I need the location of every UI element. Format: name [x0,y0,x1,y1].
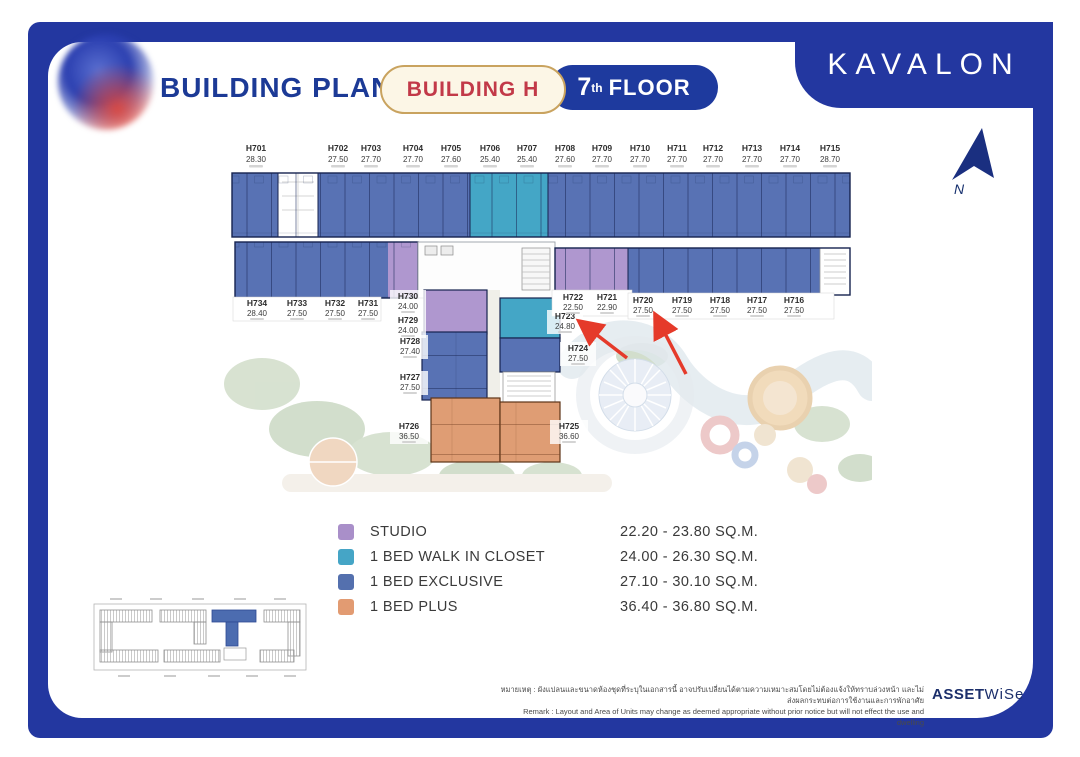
unit-area: 27.50 [328,155,349,164]
unit-band-mid-right [555,248,850,295]
page-title: BUILDING PLAN [160,72,392,104]
legend-range: 36.40 - 36.80 SQ.M. [620,599,758,615]
unit-area: 24.80 [555,322,576,331]
unit-area: 27.70 [703,155,724,164]
unit-area: 27.40 [400,347,421,356]
legend-item-studio: STUDIO 22.20 - 23.80 SQ.M. [338,519,758,544]
unit-area: 27.70 [667,155,688,164]
legend-range: 22.20 - 23.80 SQ.M. [620,524,758,540]
assetwise-logo-light: WiSe [985,686,1025,703]
legend-range: 24.00 - 26.30 SQ.M. [620,549,758,565]
unit-area: 36.50 [399,432,420,441]
unit-no: H712 [703,143,724,153]
legend-swatch-plus [338,599,354,615]
compass-arrow-icon [952,128,994,180]
unit-no: H721 [597,292,618,302]
unit-area: 27.50 [633,306,654,315]
unit-area: 27.50 [784,306,805,315]
unit-area: 27.70 [403,155,424,164]
brand-tab: KAVALON [795,22,1053,108]
unit-no: H726 [399,421,420,431]
unit-area: 27.70 [592,155,613,164]
unit-area: 25.40 [480,155,501,164]
building-badge: BUILDING H [380,65,566,114]
unit-no: H733 [287,298,308,308]
unit-no: H702 [328,143,349,153]
site-clubhouse [224,648,246,660]
unit-area: 27.70 [742,155,763,164]
unit-no: H720 [633,295,654,305]
unit-no: H717 [747,295,768,305]
site-building-h-highlight [212,610,256,646]
unit-no: H731 [358,298,379,308]
unit-no: H724 [568,343,589,353]
unit-no: H732 [325,298,346,308]
unit-area: 27.50 [710,306,731,315]
legend-range: 27.10 - 30.10 SQ.M. [620,574,758,590]
floor-word: FLOOR [609,75,691,101]
legend-label: 1 BED EXCLUSIVE [370,574,620,590]
unit-no: H718 [710,295,731,305]
unit-no: H722 [563,292,584,302]
unit-wing [422,290,560,462]
unit-no: H728 [400,336,421,346]
assetwise-logo: ASSETWiSe [932,686,1024,703]
unit-area: 28.30 [246,155,267,164]
page-canvas: KAVALON BUILDING PLAN BUILDING H 7thFLOO… [0,0,1080,757]
assetwise-logo-bold: ASSET [932,686,985,703]
unit-no: H709 [592,143,613,153]
unit-area: 27.70 [630,155,651,164]
legend-swatch-exclusive [338,574,354,590]
unit-band-top [232,173,850,237]
unit-area: 22.50 [563,303,584,312]
unit-no: H711 [667,143,687,153]
disclaimer-thai: หมายเหตุ : ผังแปลนและขนาดห้องชุดที่ระบุใ… [500,684,924,706]
unit-area: 25.40 [517,155,538,164]
floor-number: 7 [577,73,591,102]
unit-no: H713 [742,143,763,153]
site-key-plan [88,590,316,685]
legend-swatch-studio [338,524,354,540]
legend-item-walk-in-closet: 1 BED WALK IN CLOSET 24.00 - 26.30 SQ.M. [338,544,758,569]
unit-area: 27.70 [780,155,801,164]
disclaimer: หมายเหตุ : ผังแปลนและขนาดห้องชุดที่ระบุใ… [500,684,924,728]
unit-area: 27.50 [747,306,768,315]
legend-label: 1 BED PLUS [370,599,620,615]
unit-no: H703 [361,143,382,153]
unit-no: H730 [398,291,419,301]
unit-no: H704 [403,143,424,153]
unit-no: H734 [247,298,268,308]
unit-no: H710 [630,143,651,153]
unit-no: H729 [398,315,419,325]
unit-no: H707 [517,143,538,153]
floor-badge: 7thFLOOR [550,65,718,110]
unit-no: H719 [672,295,693,305]
legend-item-plus: 1 BED PLUS 36.40 - 36.80 SQ.M. [338,594,758,619]
floor-ordinal: th [591,81,602,95]
unit-area: 24.00 [398,302,419,311]
unit-area: 27.60 [441,155,462,164]
compass-n-label: N [954,181,965,197]
unit-labels-top-row: H701 28.30 H702 27.50 H703 27.70 H704 27… [246,143,841,168]
unit-no: H727 [400,372,421,382]
unit-band-mid-left [235,242,418,298]
building-badge-label: BUILDING H [407,78,540,102]
unit-no: H725 [559,421,580,431]
unit-area: 27.70 [361,155,382,164]
unit-no: H705 [441,143,462,153]
company-logo-blob [58,34,154,130]
legend-label: 1 BED WALK IN CLOSET [370,549,620,565]
unit-area: 28.70 [820,155,841,164]
unit-no: H715 [820,143,841,153]
unit-area: 27.60 [555,155,576,164]
north-compass: N [938,124,1008,208]
disclaimer-remark: Remark : Layout and Area of Units may ch… [500,706,924,728]
unit-area: 24.00 [398,326,419,335]
legend-item-exclusive: 1 BED EXCLUSIVE 27.10 - 30.10 SQ.M. [338,569,758,594]
unit-area: 27.50 [325,309,346,318]
unit-area: 27.50 [672,306,693,315]
unit-area: 27.50 [287,309,308,318]
unit-no: H706 [480,143,501,153]
brand-logo-text: KAVALON [827,48,1020,82]
legend-label: STUDIO [370,524,620,540]
unit-area: 27.50 [358,309,379,318]
unit-no: H708 [555,143,576,153]
unit-area: 22.90 [597,303,618,312]
unit-no: H701 [246,143,267,153]
floor-plan: H701 28.30 H702 27.50 H703 27.70 H704 27… [222,124,872,504]
unit-no: H714 [780,143,801,153]
unit-area: 27.50 [568,354,589,363]
unit-area: 36.60 [559,432,580,441]
unit-area: 27.50 [400,383,421,392]
legend-swatch-walk-in-closet [338,549,354,565]
unit-no: H716 [784,295,805,305]
unit-area: 28.40 [247,309,268,318]
site-buildings [100,610,300,662]
unit-type-legend: STUDIO 22.20 - 23.80 SQ.M. 1 BED WALK IN… [338,519,758,619]
